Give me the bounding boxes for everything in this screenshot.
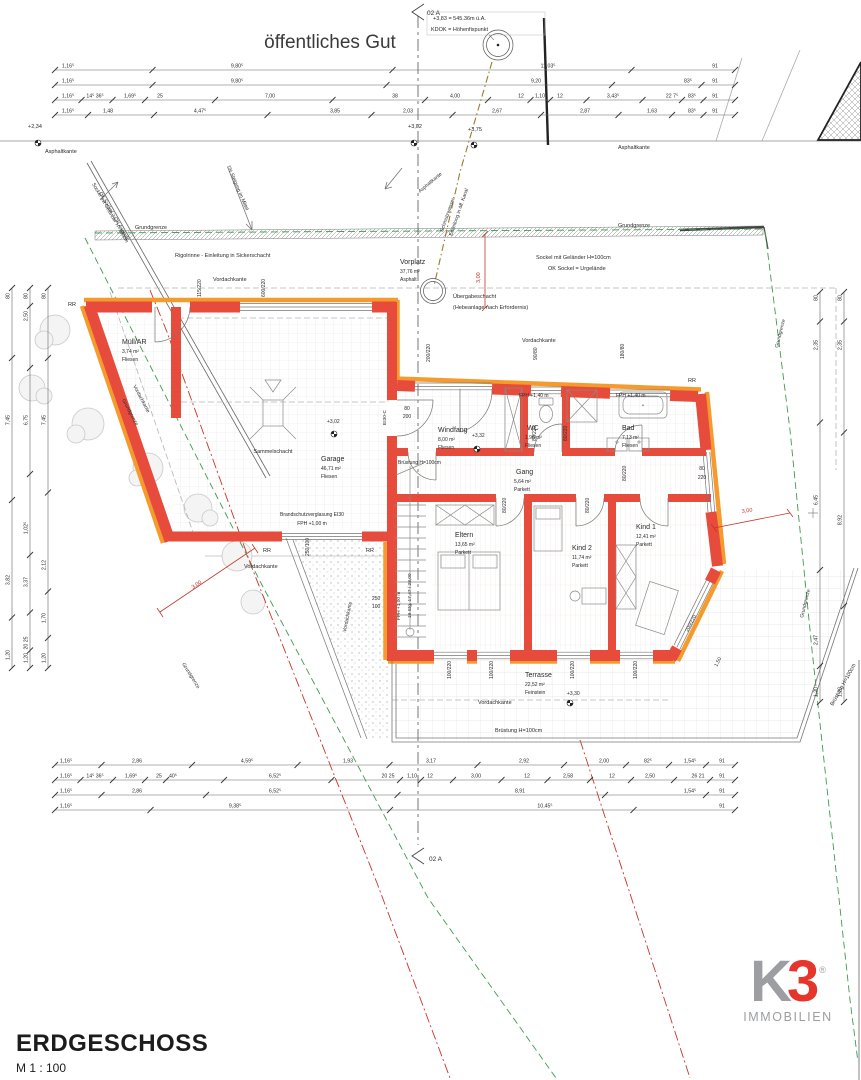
plan-label: Vordachkante [478,700,512,706]
plan-label: 3,00 [476,272,482,283]
plan-label: 100/220 [489,661,495,679]
plan-label: 90/80 [533,347,539,360]
dim-label: 2,58 [563,774,573,780]
plan-label: 3,00 [741,508,752,515]
dim-label: 82⁵ [644,759,652,765]
plan-label: Fliesen [622,443,638,449]
plan-label: 80 [699,466,705,472]
plan-label: Gang [516,469,533,476]
dim-label: 2,92 [519,759,529,765]
dim-label: 91 [719,804,725,810]
plan-label: 115/220 [197,279,203,297]
plan-label: Fliesen [438,445,454,451]
dim-label: 9,20 [531,79,541,85]
plan-label: Kind 2 [572,545,592,552]
dim-label: 91 [712,94,718,100]
plan-label: Rigolrinne - Einleitung in Sickerschacht [175,253,271,259]
plan-label: FPH +1,40 m [519,393,549,399]
dim-label: 1,16⁵ [62,109,74,115]
dim-label: 91 [712,79,718,85]
plan-label: +3,02 [408,124,422,130]
plan-label: RR [688,378,696,384]
dim-label: 4,47⁵ [194,109,206,115]
dim-label: 11,03⁵ [541,64,556,70]
dim-label: 1,63 [647,109,657,115]
plan-label: Windfang [438,427,468,434]
plan-label: FPH +1,00 m [297,521,327,527]
dim-label: 2,86 [132,789,142,795]
dim-label: 20 25 [24,636,30,649]
dim-label: 1,69⁵ [125,774,137,780]
plan-label: 200 [403,414,412,420]
plan-label: Vordachkante [213,277,247,283]
dim-label: 25 [156,774,162,780]
plan-label: RR [263,548,271,554]
dim-label: 12 [609,774,615,780]
dim-label: 6,75 [24,415,30,425]
dim-label: 83⁵ [688,109,696,115]
dim-label: 7,00 [265,94,275,100]
dim-label: 2,00 [599,759,609,765]
plan-label: 80/220 [585,497,591,513]
dim-label: 12 [518,94,524,100]
dim-label: 91 [712,64,718,70]
plan-label: Müll/AR [122,339,147,346]
plan-label: Fliesen [321,474,337,480]
dim-label: 9,38⁵ [229,804,241,810]
plan-label: Parkett [455,550,471,556]
dim-label: 40⁵ [169,774,177,780]
plan-label: +3,83 = 545.36m ü.A. [433,16,486,22]
plan-label: Sammelschacht [253,449,293,455]
plan-label: Kind 1 [636,524,656,531]
dim-label: 12 [427,774,433,780]
plan-label: 100/220 [570,661,576,679]
plan-label: Parkett [572,563,588,569]
dim-label: 26 21 [692,774,705,780]
dim-label: 20 25 [382,774,395,780]
plan-label: Asphaltkante [45,149,77,155]
plan-label: 250/100 [305,538,311,556]
dim-label: 7,45 [6,415,12,425]
plan-label: RR [68,302,76,308]
plan-label: Brüstung H=100cm [830,662,858,707]
dim-label: 8,92 [838,515,844,525]
plan-label: Asphaltkante [618,145,650,151]
plan-label: 37,76 m² [400,269,420,275]
floorplan-drawing: 1,16⁵9,80⁵11,03⁵911,16⁵9,80⁵9,2083⁵911,1… [0,0,861,1080]
dim-label: 1,93 [343,759,353,765]
dim-label: 80 [6,293,12,299]
dim-label: 2,03 [403,109,413,115]
dim-label: 7,45 [42,415,48,425]
dim-label: 1,16⁵ [62,64,74,70]
page-title: ERDGESCHOSS [16,1030,208,1058]
dim-label: 1,16⁵ [60,774,72,780]
plan-label: OK Sockel = Urgelände [548,266,606,272]
plan-label: Grundgrenze [180,662,201,690]
dim-label: 1,10 [535,94,545,100]
plan-label: Eltern [455,532,473,539]
plan-label: 100/220 [447,661,453,679]
dim-label: 1,16⁵ [62,79,74,85]
plan-label: 80 [404,406,410,412]
dim-label: 14⁵ 36⁵ [86,94,103,100]
dim-label: 2,50 [24,311,30,321]
dim-label: 1,54⁵ [684,789,696,795]
plan-label: 250 [372,596,381,602]
plan-label: öffentliches Gut [264,32,396,53]
dim-label: 80 [838,295,844,301]
plan-label: 3,74 m² [122,349,139,355]
plan-label: +3,75 [468,127,482,133]
dim-label: 3,00 [471,774,481,780]
dim-label: 25 [157,94,163,100]
dim-label: 1,48 [103,109,113,115]
plan-label: 02 A [429,856,443,863]
plan-label: 600/220 [261,279,267,297]
plan-label: Übergabeschacht [453,293,497,300]
plan-label: Grundgrenze [135,225,167,231]
plan-label: 22,52 m² [525,682,545,688]
plan-label: Asphalt [400,277,417,283]
dim-label: 83⁵ [688,94,696,100]
plan-label: Asphaltkante [417,171,443,194]
logo-k: K [750,949,792,1014]
dim-label: 4,00 [450,94,460,100]
plan-label: 13,65 m² [455,542,475,548]
plan-label: Brüstung H=100cm [495,728,543,734]
plan-label: 80/220 [532,425,538,441]
plan-label: Garage [321,456,344,463]
dim-label: 3,82 [6,575,12,585]
dim-label: 91 [719,774,725,780]
dim-label: 1,20 [24,653,30,663]
plan-label: Vorplatz [400,259,426,266]
dim-label: 8,91 [515,789,525,795]
dim-label: 6,52⁵ [269,774,281,780]
scale-label: M 1 : 100 [16,1061,208,1075]
plan-label: 3,00 [191,580,203,591]
dim-label: 1,16⁵ [60,789,72,795]
plan-label: Grundgrenze [618,223,650,229]
plan-label: 46,71 m² [321,466,341,472]
dim-label: 1,16⁵ [60,804,72,810]
dim-label: 2,35 [814,340,820,350]
dim-label: 80 [814,295,820,301]
plan-label: +3,02 [327,419,340,425]
plan-label: 80/220 [502,497,508,513]
plan-label: Brüstung H=100cm [398,460,441,466]
plan-label: Vordachkante [522,338,556,344]
plan-label: 100 [372,604,381,610]
dim-label: 3,43⁵ [607,94,619,100]
plan-label: 200/220 [426,344,432,362]
plan-label: Sockel mit Geländer H=100cm [536,255,611,261]
dim-label: 2,35 [838,340,844,350]
dim-label: 1,16⁵ [62,94,74,100]
dim-label: 6,45 [814,495,820,505]
title-block: ERDGESCHOSS M 1 : 100 [16,1030,208,1075]
plan-label: RR [366,548,374,554]
plan-label: 8,00 m² [438,437,455,443]
plan-label: Terrasse [525,672,552,679]
plan-label: Fliesen [122,357,138,363]
dim-label: 9,80⁵ [231,64,243,70]
boundary-strip [95,62,861,249]
dim-label: 91 [719,759,725,765]
dim-label: 1,20 [6,650,12,660]
dim-label: 1,16⁵ [60,759,72,765]
dim-label: 2,86 [132,759,142,765]
plan-label: Bad [622,425,635,432]
plan-label: 12,41 m² [636,534,656,540]
dim-label: 3,37 [24,577,30,587]
dim-label: 91 [719,789,725,795]
plan-label: (Hebeanlage nach Erfordernis) [453,305,528,311]
dim-label: 1,20 [42,653,48,663]
dim-label: 83⁵ [684,79,692,85]
dim-label: 2,47 [814,635,820,645]
dim-label: 1,02⁵ [24,522,30,534]
dim-label: 22 7⁵ [666,94,678,100]
plan-label: FPH +1,40 m [616,393,646,399]
plan-label: Feinstein [525,690,546,696]
dim-label: 1,69⁵ [124,94,136,100]
dim-label: 80 [24,293,30,299]
dim-label: 14⁵ 36⁵ [86,774,103,780]
plan-label: 80/220 [622,465,628,481]
plan-label: 11,74 m² [572,555,592,561]
plan-label: 180/80 [620,343,626,359]
dim-label: 38 [392,94,398,100]
dim-label: 3,85 [330,109,340,115]
dim-label: 12 [557,94,563,100]
k3-logo: K3® IMMOBILIEN [737,956,839,1024]
plan-label: Parkett [514,487,530,493]
dim-label: 6,52⁵ [269,789,281,795]
plan-label: 80/220 [563,425,569,441]
plan-label: 220 [698,475,707,481]
plan-label: +3,32 [472,433,485,439]
logo-subtitle: IMMOBILIEN [737,1010,839,1024]
plan-label: 7,13 m² [622,435,639,441]
dim-label: 1,70 [42,613,48,623]
dim-label: 1,10 [407,774,417,780]
plan-label: +3,30 [567,691,580,697]
dim-label: 4,59⁵ [241,759,253,765]
dim-label: 12 [524,774,530,780]
plan-label: Parkett [636,542,652,548]
dim-label: 9,80⁵ [231,79,243,85]
plan-label: +2,34 [28,124,42,130]
dim-label: 80 [42,293,48,299]
logo-registered-mark: ® [819,965,826,975]
plan-label: EI30-C [382,410,388,425]
plan-label: Fliesen [525,443,541,449]
dim-label: 3,17 [426,759,436,765]
dim-label: 10,45⁵ [537,804,552,810]
plan-label: Vordachkante [244,564,278,570]
plan-label: Brandschutzverglasung EI30 [280,512,344,518]
plan-label: 100/220 [633,661,639,679]
plan-label: FPH +1,00 m [396,592,402,620]
plan-label: 19 Stg. 17,47 / 28,00 [407,573,413,618]
dim-label: 2,67 [492,109,502,115]
plan-label: KDOK = Höhenfixpunkt [431,27,488,33]
logo-3: 3 [787,949,819,1014]
dim-label: 1,54⁵ [684,759,696,765]
dim-label: 2,50 [645,774,655,780]
plan-label: 1% Steigung im Mittel [225,164,249,211]
dim-label: 2,12 [42,560,48,570]
dim-label: 1,20 [814,687,820,697]
plan-label: Grundgrenze [774,319,787,349]
dim-label: 91 [712,109,718,115]
dim-label: 2,87 [580,109,590,115]
plan-label: 5,64 m² [514,479,531,485]
